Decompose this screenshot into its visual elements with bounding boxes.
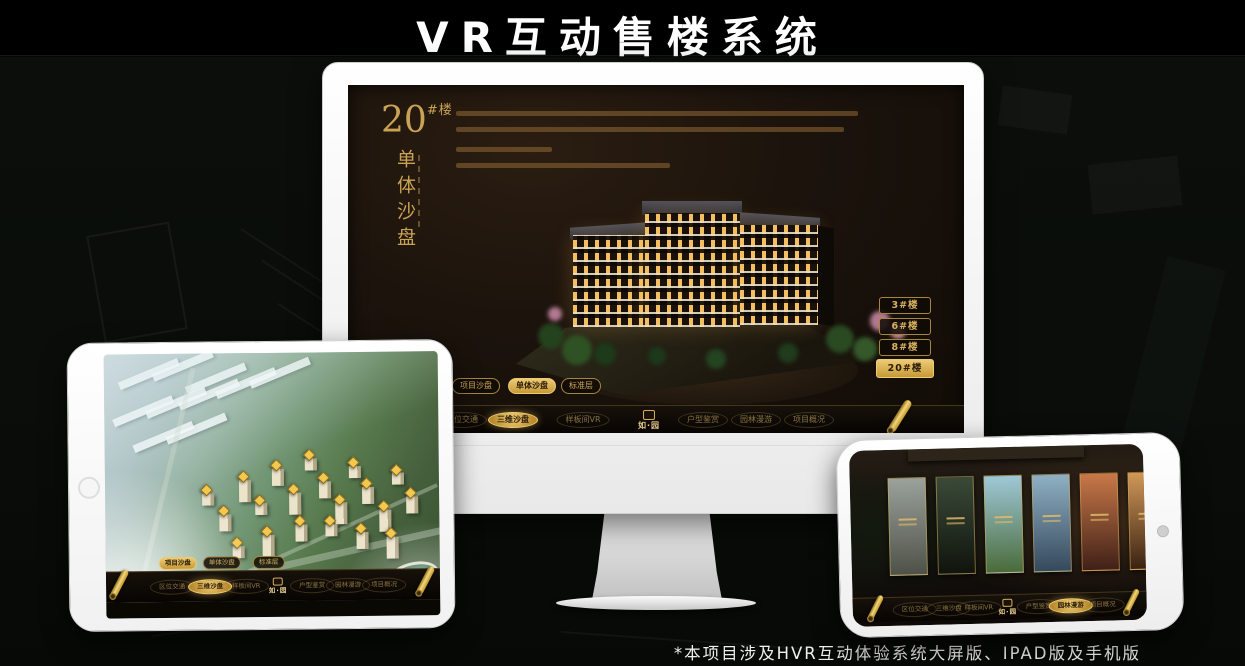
nav-item-garden-tour[interactable]: 园林漫游 <box>731 412 781 428</box>
seal-icon <box>273 578 283 586</box>
tablet-nav-bar: 区位交通 三维沙盘 样板间VR 如·园 户型鉴赏 园林漫游 项目概况 <box>106 568 440 602</box>
pano-card[interactable] <box>1080 472 1120 571</box>
phone-nav-bar: 区位交通 三维沙盘 样板间VR 如·园 户型鉴赏 园林漫游 项目概况 <box>852 591 1147 623</box>
scroll-handle-icon[interactable] <box>110 569 130 599</box>
tab-project-sandtable[interactable]: 项目沙盘 <box>452 378 500 394</box>
phone-screen: 区位交通 三维沙盘 样板间VR 如·园 户型鉴赏 园林漫游 项目概况 <box>849 444 1147 627</box>
nav-item-project-overview[interactable]: 项目概况 <box>784 412 834 428</box>
tablet-screen-footer <box>106 599 440 618</box>
scroll-handle-icon[interactable] <box>1123 588 1140 614</box>
pano-card-label-dashes <box>1091 514 1109 516</box>
pano-card[interactable] <box>984 475 1024 574</box>
pano-card-label-dashes <box>947 517 965 519</box>
tree <box>778 343 798 363</box>
tablet-device: 项目沙盘 单体沙盘 标准层 区位交通 三维沙盘 样板间VR 如·园 户型鉴赏 园… <box>66 339 455 632</box>
building-side-face <box>818 226 834 327</box>
scroll-handle-icon[interactable] <box>887 399 913 433</box>
tree <box>648 347 666 365</box>
pano-card[interactable] <box>936 476 976 575</box>
nav-item-3d-sandtable[interactable]: 三维沙盘 <box>488 412 538 428</box>
pano-card-label-dashes <box>1139 513 1148 515</box>
tree <box>826 325 854 353</box>
background-building <box>998 85 1073 134</box>
tablet-home-button[interactable] <box>78 477 100 499</box>
tab-standard-floor[interactable]: 标准层 <box>561 378 601 394</box>
phone-device: 区位交通 三维沙盘 样板间VR 如·园 户型鉴赏 园林漫游 项目概况 <box>836 432 1185 638</box>
background-building <box>1088 155 1183 214</box>
pano-card[interactable] <box>888 477 928 576</box>
seal-icon <box>643 410 655 420</box>
background-road-line <box>240 228 333 290</box>
building-wing-left <box>573 235 645 327</box>
interior-lintel <box>908 445 1085 461</box>
building-wing-right <box>740 225 818 325</box>
building-center <box>645 213 740 327</box>
nav-item-showroom-vr[interactable]: 样板间VR <box>556 412 609 428</box>
pano-card-label-dashes <box>1043 515 1061 517</box>
phone-gallery <box>888 471 1148 576</box>
block-title: 20#楼 <box>381 99 453 141</box>
floor-button-3[interactable]: 3#楼 <box>879 297 931 314</box>
pano-card[interactable] <box>1032 474 1072 573</box>
subtitle-english-dashes <box>418 155 420 232</box>
tree <box>562 335 592 365</box>
description-line <box>456 163 670 168</box>
monitor-stand-neck <box>592 508 722 600</box>
tab-single-sandtable[interactable]: 单体沙盘 <box>508 378 556 394</box>
scroll-handle-icon[interactable] <box>415 565 435 595</box>
floor-button-8[interactable]: 8#楼 <box>879 339 931 356</box>
tree <box>706 349 726 369</box>
block-title-suffix: #楼 <box>427 103 453 118</box>
footnote: *本项目涉及HVR互动体验系统大屏版、IPAD版及手机版 <box>674 640 1141 664</box>
pano-card-label-dashes <box>899 519 917 521</box>
monitor-stand-base <box>556 596 756 610</box>
page-title: VR互动售楼系统 <box>0 4 1245 65</box>
nav-item-unit-gallery[interactable]: 户型鉴赏 <box>678 412 728 428</box>
app-logo: 如·园 <box>998 599 1017 616</box>
app-logo: 如·园 <box>638 410 660 430</box>
background-sign <box>86 222 188 344</box>
pano-card-label-dashes <box>995 516 1013 518</box>
tree <box>594 343 616 365</box>
description-line <box>456 127 844 132</box>
description-line <box>456 111 858 116</box>
tree <box>538 323 564 349</box>
tablet-tab-standard-floor[interactable]: 标准层 <box>253 556 285 569</box>
blossom-tree <box>548 307 562 321</box>
block-subtitle-vertical: 单体沙盘 <box>392 149 419 253</box>
nav-item-project-overview[interactable]: 项目概况 <box>362 577 406 592</box>
description-line <box>456 147 552 152</box>
floor-button-20[interactable]: 20#楼 <box>876 359 934 378</box>
nav-item-showroom-vr[interactable]: 样板间VR <box>223 579 270 594</box>
nav-item-project-overview[interactable]: 项目概况 <box>1081 597 1125 613</box>
tablet-tab-project-sandtable[interactable]: 项目沙盘 <box>159 557 197 570</box>
tablet-screen: 项目沙盘 单体沙盘 标准层 区位交通 三维沙盘 样板间VR 如·园 户型鉴赏 园… <box>104 351 441 618</box>
tablet-tab-single-sandtable[interactable]: 单体沙盘 <box>203 556 241 569</box>
app-logo: 如·园 <box>269 577 288 594</box>
pano-card[interactable] <box>1127 471 1147 570</box>
scroll-handle-icon[interactable] <box>867 594 884 620</box>
seal-icon <box>1003 599 1013 607</box>
phone-camera-dot <box>1157 525 1169 537</box>
nav-item-showroom-vr[interactable]: 样板间VR <box>955 600 1002 616</box>
floor-button-6[interactable]: 6#楼 <box>879 318 931 335</box>
tree <box>853 337 877 361</box>
